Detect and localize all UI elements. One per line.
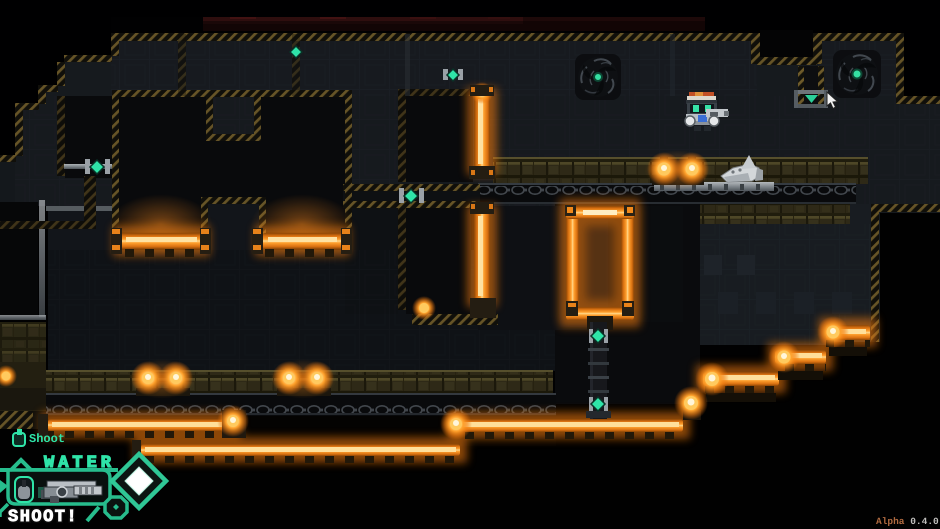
svg-text:SHOOT!: SHOOT! [8, 508, 78, 527]
svg-text:Shoot: Shoot [29, 432, 65, 446]
svg-text:Alpha 0.4.0: Alpha 0.4.0 [876, 516, 939, 527]
